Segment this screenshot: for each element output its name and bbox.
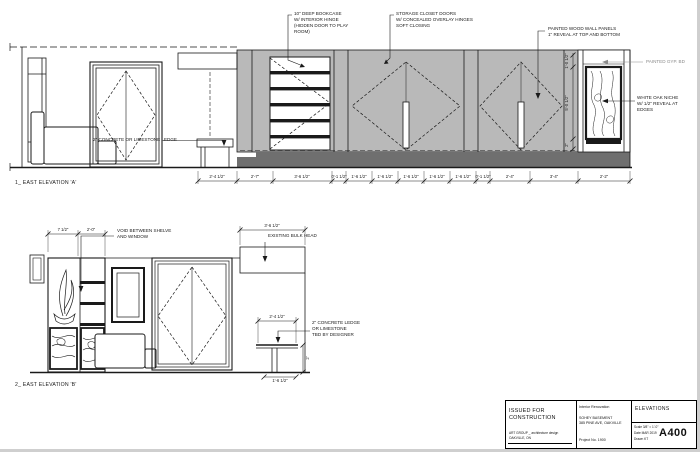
elevation-b-label: 2_ EAST ELEVATION 'B' [15, 382, 77, 389]
titleblock-fine-print: ART GROUP _ architecture design OAKVILLE… [509, 431, 558, 441]
bookcase [270, 57, 330, 150]
sheet-number: A400 [659, 426, 687, 440]
annotation-ledge-a: 2" CONCRETE OR LIMESTONE LEDGE [93, 137, 177, 143]
annotation-storage-doors: STORAGE CLOSET DOORS W/ CONCEALED OVERLA… [396, 11, 473, 29]
project-type: Interior Renovation [579, 405, 609, 410]
door-handle [403, 102, 409, 148]
titleblock-divider [576, 401, 577, 448]
vdim-a-1: 5'-0 1/2" [565, 95, 569, 110]
dim-b-ledge-top: 2'-4 1/2" [269, 315, 284, 319]
wall-sconce [30, 255, 44, 283]
dim-b-topleft-2: 2'-0" [87, 228, 95, 232]
project-name: SOHEY BASEMENT 385 PINE AVE, OAKVILLE [579, 416, 621, 427]
dim-a-10: 2'-4" [506, 175, 514, 179]
annotation-wood-panels: PAINTED WOOD WALL PANELS 1" REVEAL AT TO… [548, 26, 620, 38]
dim-a-4: 1'-6 1/2" [351, 175, 366, 179]
base-band [256, 152, 630, 167]
dim-a-6: 1'-6 1/2" [403, 175, 418, 179]
drawing-linework [0, 0, 700, 452]
soffit [178, 53, 237, 69]
vdim-a-0: 1'-0 1/2" [565, 53, 569, 68]
dim-a-3: 0'-1 1/2" [331, 175, 346, 179]
dim-a-9: 0'-1 1/2" [475, 175, 490, 179]
annotation-bookcase: 10" DEEP BOOKCASE W/ INTERIOR HINGE (HID… [294, 11, 348, 35]
elevation-a [10, 43, 632, 171]
annotation-bulkhead: EXISTING BULK HEAD [268, 233, 317, 239]
elevation-b [30, 247, 310, 373]
sofa [95, 334, 156, 368]
bulkhead [240, 247, 305, 273]
dim-a-11: 3'-4" [550, 175, 558, 179]
ledge-a [197, 139, 233, 167]
dim-a-2: 3'-6 1/2" [294, 175, 309, 179]
vdim-a-2: 2" [565, 143, 569, 147]
dim-a-0: 2'-4 1/2" [209, 175, 224, 179]
dim-a-5: 1'-6 1/2" [377, 175, 392, 179]
drawing-sheet: 10" DEEP BOOKCASE W/ INTERIOR HINGE (HID… [0, 0, 700, 452]
title-block: ISSUED FOR CONSTRUCTION ART GROUP _ arch… [505, 400, 697, 449]
dim-a-8: 1'-6 1/2" [455, 175, 470, 179]
annotation-gyp-bd: PAINTED GYP. BD [646, 59, 685, 65]
issued-stamp: ISSUED FOR CONSTRUCTION [509, 408, 573, 422]
titleblock-rule [631, 422, 696, 423]
elevation-b-leaders [79, 236, 310, 343]
door-b [152, 258, 232, 370]
drawn-field: Drawn KT [634, 438, 648, 441]
dim-a-1: 2'-7" [251, 175, 259, 179]
dim-b-ledge-bottom: 1'-6 1/2" [272, 379, 287, 383]
dim-b-right-vert: 2' [306, 356, 310, 359]
dim-a-7: 1'-6 1/2" [429, 175, 444, 179]
project-number: Project No. 1900 [579, 438, 606, 443]
ledge-b [256, 345, 298, 372]
dim-b-topleft-1: 7 1/2" [58, 228, 69, 232]
date-field: Date MAR 2019 [634, 432, 657, 435]
annotation-oak-niche: WHITE OAK NICHE W/ 1/2" REVEAL AT EDGES [637, 95, 678, 113]
annotation-ledge-b: 2" CONCRETE LEDGE OR LIMESTONE TBD BY DE… [312, 320, 360, 338]
dim-b-bulkhead: 3'-6 1/2" [264, 224, 279, 228]
plant-decor [54, 270, 75, 324]
titleblock-rule [508, 443, 572, 444]
annotation-void: VOID BETWEEN SHELVE AND WINDOW [117, 228, 171, 240]
titleblock-divider [631, 401, 632, 448]
sheet-title: ELEVATIONS [635, 406, 670, 413]
door-handle [518, 102, 524, 148]
elevation-a-label: 1_ EAST ELEVATION 'A' [15, 180, 77, 187]
dim-a-12: 2'-2" [600, 175, 608, 179]
scale-field: Scale 3/8" = 1'-0" [634, 426, 658, 429]
picture-frame [112, 268, 144, 322]
